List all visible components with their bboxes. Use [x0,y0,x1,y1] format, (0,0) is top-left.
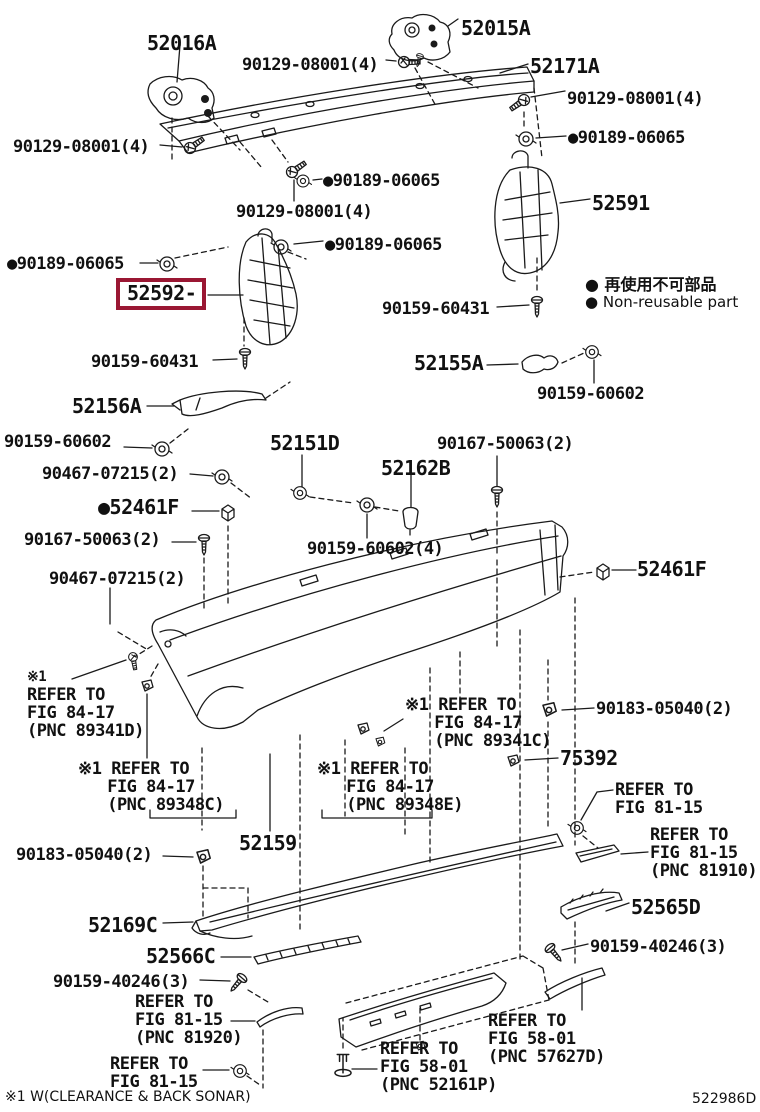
part-label-90167-50063-left[interactable]: 90167-50063(2) [24,531,160,549]
part-label-90189-06065-left[interactable]: ●90189-06065 [7,255,124,273]
part-label-ref-8115-top: REFER TO FIG 81-15 [615,781,703,817]
part-label-90159-60602-left[interactable]: 90159-60602 [4,433,111,451]
part-label-90159-60431-right[interactable]: 90159-60431 [382,300,489,318]
part-label-90159-60431-left[interactable]: 90159-60431 [91,353,198,371]
part-label-52591[interactable]: 52591 [592,193,650,214]
part-label-90189-06065-mid-top[interactable]: ●90189-06065 [323,172,440,190]
part-label-90129-08001-left[interactable]: 90129-08001(4) [13,138,149,156]
part-label-ref-81920: REFER TO FIG 81-15 (PNC 81920) [135,993,242,1047]
part-label-90129-08001-right[interactable]: 90129-08001(4) [567,90,703,108]
part-label-fn-89341d-mark: ※1 [27,670,46,685]
part-label-90159-40246-right[interactable]: 90159-40246(3) [590,938,726,956]
part-label-90129-08001-mid[interactable]: 90129-08001(4) [236,203,372,221]
part-label-90159-60602-right[interactable]: 90159-60602 [537,385,644,403]
part-label-ref-89348c: ※1 REFER TO FIG 84-17 (PNC 89348C) [78,760,224,814]
part-label-ref-52161p: REFER TO FIG 58-01 (PNC 52161P) [380,1040,497,1094]
part-label-52162b[interactable]: 52162B [381,458,450,479]
part-label-90467-07215-bot[interactable]: 90467-07215(2) [49,570,185,588]
part-label-52159[interactable]: 52159 [239,833,297,854]
part-label-52156a[interactable]: 52156A [72,396,141,417]
part-label-ref-89341c: ※1 REFER TO FIG 84-17 (PNC 89341C) [405,696,551,750]
part-label-52592[interactable]: 52592- [116,278,206,310]
part-label-ref-57627d: REFER TO FIG 58-01 (PNC 57627D) [488,1012,605,1066]
part-label-75392[interactable]: 75392 [560,748,618,769]
legend-non-reusable-en: ● Non-reusable part [585,293,738,311]
part-label-52566c[interactable]: 52566C [146,946,215,967]
part-label-90167-50063-right[interactable]: 90167-50063(2) [437,435,573,453]
part-label-90183-05040-left[interactable]: 90183-05040(2) [16,846,152,864]
part-label-90129-08001-top[interactable]: 90129-08001(4) [242,56,378,74]
legend-non-reusable-jp: ● 再使用不可部品 [585,271,717,295]
part-label-52151d[interactable]: 52151D [270,433,339,454]
part-label-90467-07215-top[interactable]: 90467-07215(2) [42,465,178,483]
part-label-52461f-right[interactable]: 52461F [637,559,706,580]
part-label-ref-81910: REFER TO FIG 81-15 (PNC 81910) [650,826,757,880]
part-label-52015a[interactable]: 52015A [461,18,530,39]
part-label-52565d[interactable]: 52565D [631,897,700,918]
parts-diagram-canvas: 52016A90129-08001(4)52015A52171A90129-08… [0,0,760,1112]
part-label-ref-89348e: ※1 REFER TO FIG 84-17 (PNC 89348E) [317,760,463,814]
part-label-52171a[interactable]: 52171A [530,56,599,77]
part-label-52155a[interactable]: 52155A [414,353,483,374]
part-label-52016a[interactable]: 52016A [147,33,216,54]
part-label-90159-40246-left[interactable]: 90159-40246(3) [53,973,189,991]
part-label-52169c[interactable]: 52169C [88,915,157,936]
part-label-90189-06065-right-top[interactable]: ●90189-06065 [568,129,685,147]
part-label-90183-05040-right[interactable]: 90183-05040(2) [596,700,732,718]
part-label-ref-89341d: REFER TO FIG 84-17 (PNC 89341D) [27,686,144,740]
label-layer: 52016A90129-08001(4)52015A52171A90129-08… [0,0,760,1112]
part-label-90159-60602-4[interactable]: 90159-60602(4) [307,540,443,558]
part-label-90189-06065-mid[interactable]: ●90189-06065 [325,236,442,254]
footnote-clearance-back-sonar: ※1 W(CLEARANCE & BACK SONAR) [5,1089,251,1105]
figure-code: 522986D [692,1091,756,1107]
part-label-52461f-left[interactable]: ●52461F [98,497,179,518]
part-label-ref-8115-bot: REFER TO FIG 81-15 [110,1055,198,1091]
